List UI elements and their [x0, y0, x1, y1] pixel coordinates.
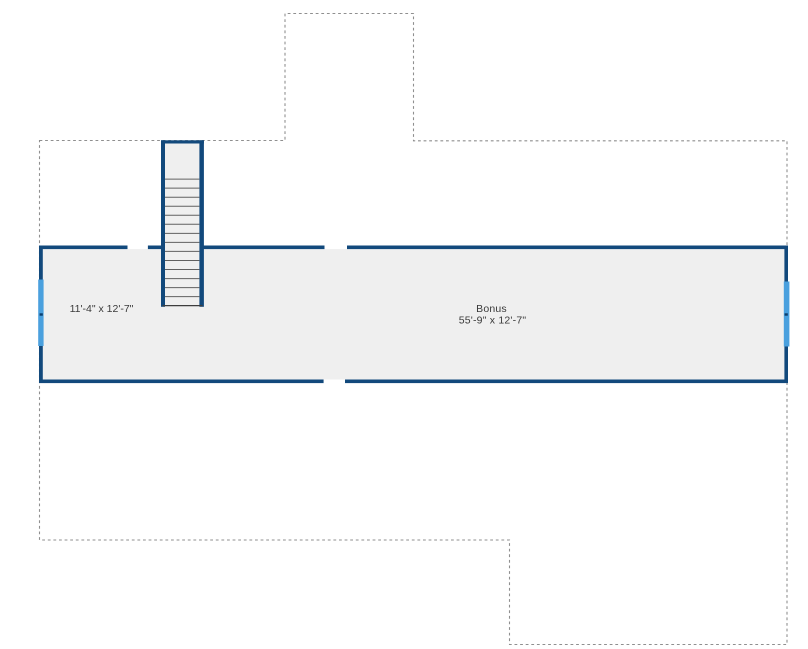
svg-text:11'-4" x 12'-7": 11'-4" x 12'-7" [70, 303, 134, 315]
svg-text:55'-9" x 12'-7": 55'-9" x 12'-7" [459, 314, 527, 326]
svg-text:Bonus: Bonus [476, 303, 507, 315]
